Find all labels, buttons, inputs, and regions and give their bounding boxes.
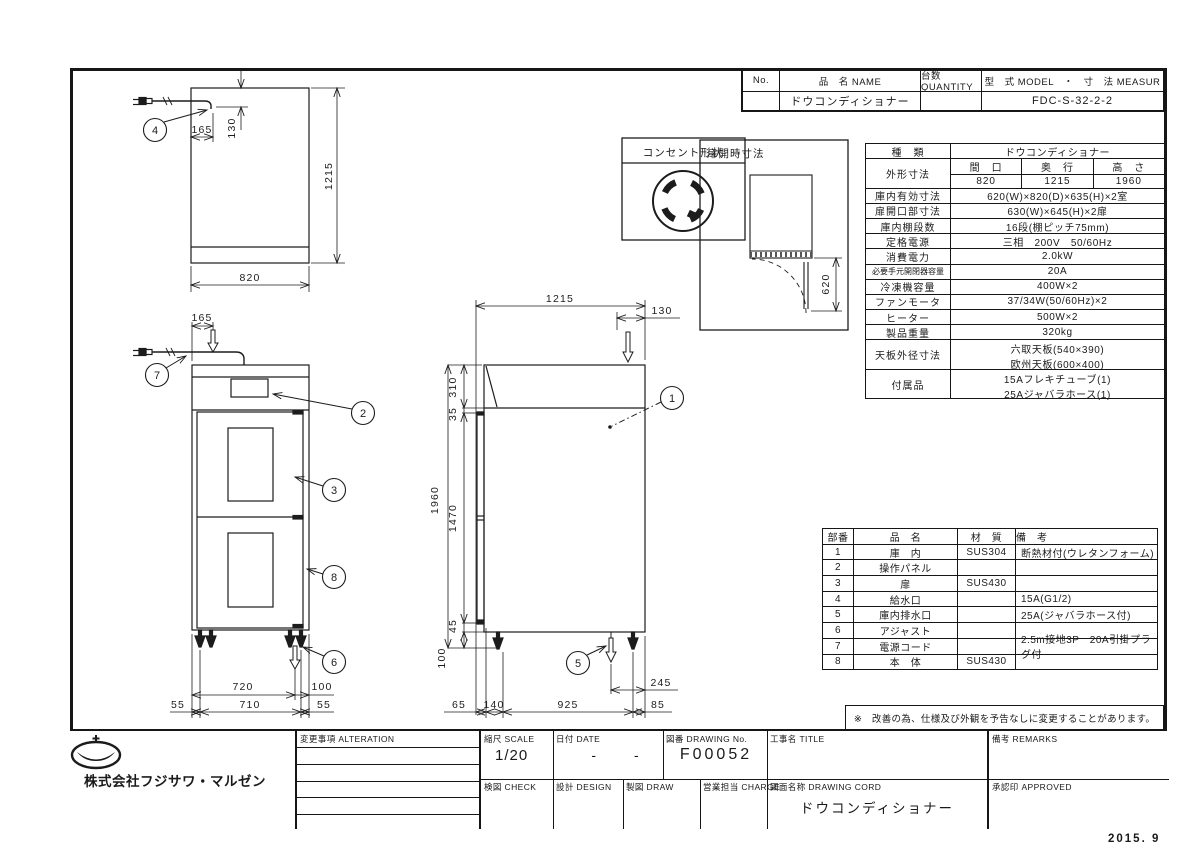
date-label: 日付 DATE	[556, 733, 600, 745]
title-block: 株式会社フジサワ・マルゼン 変更事項 ALTERATION 備考 REMARKS…	[70, 729, 1167, 830]
alteration-label: 変更事項 ALTERATION	[300, 733, 394, 745]
dim-door-620: 620	[820, 273, 832, 294]
drawing-no-label: 図番 DRAWING No.	[666, 733, 747, 745]
header-model-value: FDC-S-32-2-2	[982, 92, 1163, 112]
spec-row-label: 庫内有効寸法	[866, 189, 951, 203]
parts-cell: 2	[823, 560, 854, 575]
disclaimer-note: ※ 改善の為、仕様及び外観を予告なしに変更することがあります。	[845, 705, 1164, 730]
spec-row-label: 定格電源	[866, 234, 951, 248]
balloon-5: 5	[575, 658, 581, 670]
parts-header-mat: 材 質	[958, 529, 1016, 544]
dim-side-130: 130	[651, 305, 672, 317]
spec-outer-label: 外形寸法	[866, 159, 951, 187]
parts-cell	[958, 592, 1016, 607]
company-logo: 株式会社フジサワ・マルゼン	[70, 731, 295, 829]
dim-front-100: 100	[311, 681, 332, 693]
check-label: 検図 CHECK	[484, 781, 536, 793]
dim-front-720: 720	[232, 681, 253, 693]
remarks-label: 備考 REMARKS	[992, 733, 1057, 745]
company-logo-mark	[70, 731, 122, 773]
parts-cell: SUS304	[958, 545, 1016, 560]
spec-outer-col-d: 奥 行	[1022, 159, 1093, 174]
spec-outer-val-h: 1960	[1094, 175, 1164, 187]
parts-cell	[958, 607, 1016, 622]
spec-row-value: 16段(棚ピッチ75mm)	[951, 219, 1164, 233]
scale-value: 1/20	[495, 747, 528, 764]
dim-front-55r: 55	[317, 699, 331, 711]
spec-row-value: 320kg	[951, 325, 1164, 339]
parts-cell	[1016, 560, 1157, 575]
spec-row-label: 消費電力	[866, 249, 951, 263]
dim-side-925: 925	[557, 699, 578, 711]
company-name: 株式会社フジサワ・マルゼン	[84, 770, 266, 790]
balloon-4: 4	[152, 125, 158, 137]
spec-row-value: 37/34W(50/60Hz)×2	[951, 295, 1164, 309]
parts-cell: 本 体	[854, 655, 958, 670]
spec-row-label: 扉開口部寸法	[866, 204, 951, 218]
parts-cell	[1016, 655, 1157, 670]
parts-cell: アジャスト	[854, 623, 958, 638]
spec-row-value: 20A	[951, 265, 1164, 279]
dim-front-165: 165	[191, 312, 212, 324]
spec-row-label: ヒーター	[866, 310, 951, 324]
spec-table: 種 類 ドウコンディショナー 外形寸法 間 口 奥 行 高 さ 820 1215…	[865, 143, 1165, 399]
parts-cell: 給水口	[854, 592, 958, 607]
parts-cell	[1016, 576, 1157, 591]
scale-label: 縮尺 SCALE	[484, 733, 534, 745]
header-no-label: No.	[743, 71, 780, 91]
balloon-1: 1	[669, 393, 675, 405]
drawing-name-value: ドウコンディショナー	[800, 797, 954, 817]
parts-table: 部番 品 名 材 質 備 考 1庫 内SUS304断熱材付(ウレタンフォーム) …	[822, 528, 1158, 670]
parts-cell	[958, 639, 1016, 654]
spec-row-value: 2.0kW	[951, 249, 1164, 263]
spec-tenban-label: 天板外径寸法	[866, 340, 951, 368]
side-feet	[493, 632, 638, 649]
header-table: No. 品 名 NAME 台数 QUANTITY 型 式 MODEL ・ 寸 法…	[741, 69, 1165, 112]
dim-side-35: 35	[447, 407, 459, 421]
spec-outer-col-h: 高 さ	[1094, 159, 1164, 174]
parts-cell: 15A(G1/2)	[1016, 592, 1157, 607]
parts-header-rem: 備 考	[1016, 529, 1048, 544]
spec-outer-col-w: 間 口	[951, 159, 1022, 174]
balloon-3: 3	[331, 485, 337, 497]
approved-label: 承認印 APPROVED	[992, 781, 1072, 793]
drawing-no-value: F00052	[666, 746, 766, 764]
spec-row-label: 製品重量	[866, 325, 951, 339]
parts-cell: 5	[823, 607, 854, 622]
dim-side-65: 65	[452, 699, 466, 711]
dim-plan-130: 130	[226, 117, 238, 138]
spec-tenban-line1: 六取天板(540×390)	[1011, 341, 1105, 356]
parts-cell: 3	[823, 576, 854, 591]
remarks-column: 備考 REMARKS 承認印 APPROVED	[987, 731, 1169, 829]
dim-side-140: 140	[483, 699, 504, 711]
header-qty-value	[921, 92, 982, 112]
parts-cell: 8	[823, 655, 854, 670]
spec-fuzoku-line1: 15Aフレキチューブ(1)	[1004, 371, 1111, 386]
spec-row-value: 630(W)×645(H)×2扉	[951, 204, 1164, 218]
parts-cell: 庫 内	[854, 545, 958, 560]
parts-cell: SUS430	[958, 655, 1016, 670]
spec-kind-label: 種 類	[866, 144, 951, 158]
parts-cell: 電源コード	[854, 639, 958, 654]
balloon-6: 6	[331, 657, 337, 669]
draw-label: 製図 DRAW	[626, 781, 674, 793]
side-view	[477, 332, 645, 662]
balloons	[144, 119, 684, 675]
date-value: - -	[570, 747, 660, 763]
parts-cell: 25A(ジャバラホース付)	[1016, 607, 1157, 622]
spec-fuzoku-line2: 25Aジャバラホース(1)	[1004, 386, 1111, 401]
header-no-value	[743, 92, 780, 112]
spec-kind-value: ドウコンディショナー	[951, 144, 1164, 158]
dim-side-100: 100	[436, 647, 448, 668]
dim-side-1215: 1215	[546, 293, 574, 305]
header-name-value: ドウコンディショナー	[780, 92, 921, 112]
spec-outer-val-w: 820	[951, 175, 1022, 187]
balloon-8: 8	[331, 572, 337, 584]
parts-cell: 扉	[854, 576, 958, 591]
design-label: 設計 DESIGN	[556, 781, 612, 793]
dim-side-1960: 1960	[429, 486, 441, 514]
parts-cell: 4	[823, 592, 854, 607]
dim-plan-165: 165	[191, 124, 212, 136]
header-qty-label: 台数 QUANTITY	[921, 71, 982, 91]
spec-row-value: 620(W)×820(D)×635(H)×2室	[951, 189, 1164, 203]
alteration-table: 変更事項 ALTERATION	[295, 731, 481, 829]
spec-row-label: 必要手元開閉器容量	[866, 265, 951, 279]
parts-cell	[958, 560, 1016, 575]
header-model-label: 型 式 MODEL ・ 寸 法 MEASUR	[982, 71, 1163, 91]
parts-cell: 6	[823, 623, 854, 638]
dim-plan-820: 820	[239, 272, 260, 284]
balloon-7: 7	[154, 370, 160, 382]
dim-side-310: 310	[447, 376, 459, 397]
dim-side-85: 85	[651, 699, 665, 711]
charge-label: 営業担当 CHARGE	[703, 781, 780, 793]
parts-cell: 断熱材付(ウレタンフォーム)	[1016, 545, 1157, 560]
spec-outer-val-d: 1215	[1022, 175, 1093, 187]
balloon-2: 2	[360, 408, 366, 420]
door-open-inset-title: 扉開時寸法	[707, 147, 765, 160]
spec-row-value: 400W×2	[951, 280, 1164, 294]
front-feet	[195, 630, 306, 647]
dim-side-245: 245	[650, 677, 671, 689]
plan-view	[133, 88, 309, 263]
parts-cell: 2.5m接地3P 20A引掛プラグ付	[1016, 639, 1157, 654]
dim-side-45: 45	[447, 619, 459, 633]
dim-front-55l: 55	[171, 699, 185, 711]
parts-cell: 7	[823, 639, 854, 654]
title-label: 工事名 TITLE	[770, 733, 825, 745]
dim-front-710: 710	[239, 699, 260, 711]
spec-row-value: 500W×2	[951, 310, 1164, 324]
parts-header-no: 部番	[823, 529, 854, 544]
date-stamp: 2015. 9	[1108, 833, 1160, 845]
spec-row-label: ファンモータ	[866, 295, 951, 309]
drawing-sheet: 820 1215 165 130	[0, 0, 1200, 848]
spec-row-value: 三相 200V 50/60Hz	[951, 234, 1164, 248]
parts-cell: 操作パネル	[854, 560, 958, 575]
parts-header-name: 品 名	[854, 529, 958, 544]
parts-cell: 1	[823, 545, 854, 560]
spec-row-label: 冷凍機容量	[866, 280, 951, 294]
dim-side-1470: 1470	[447, 504, 459, 532]
outlet-plug-icon	[656, 174, 709, 227]
parts-cell: SUS430	[958, 576, 1016, 591]
parts-cell	[958, 623, 1016, 638]
header-name-label: 品 名 NAME	[780, 71, 921, 91]
spec-fuzoku-label: 付属品	[866, 370, 951, 398]
spec-row-label: 庫内棚段数	[866, 219, 951, 233]
parts-cell: 庫内排水口	[854, 607, 958, 622]
door-open-inset	[700, 140, 848, 330]
dim-plan-1215: 1215	[323, 162, 335, 190]
drawing-name-label: 図面名称 DRAWING CORD	[770, 781, 881, 793]
